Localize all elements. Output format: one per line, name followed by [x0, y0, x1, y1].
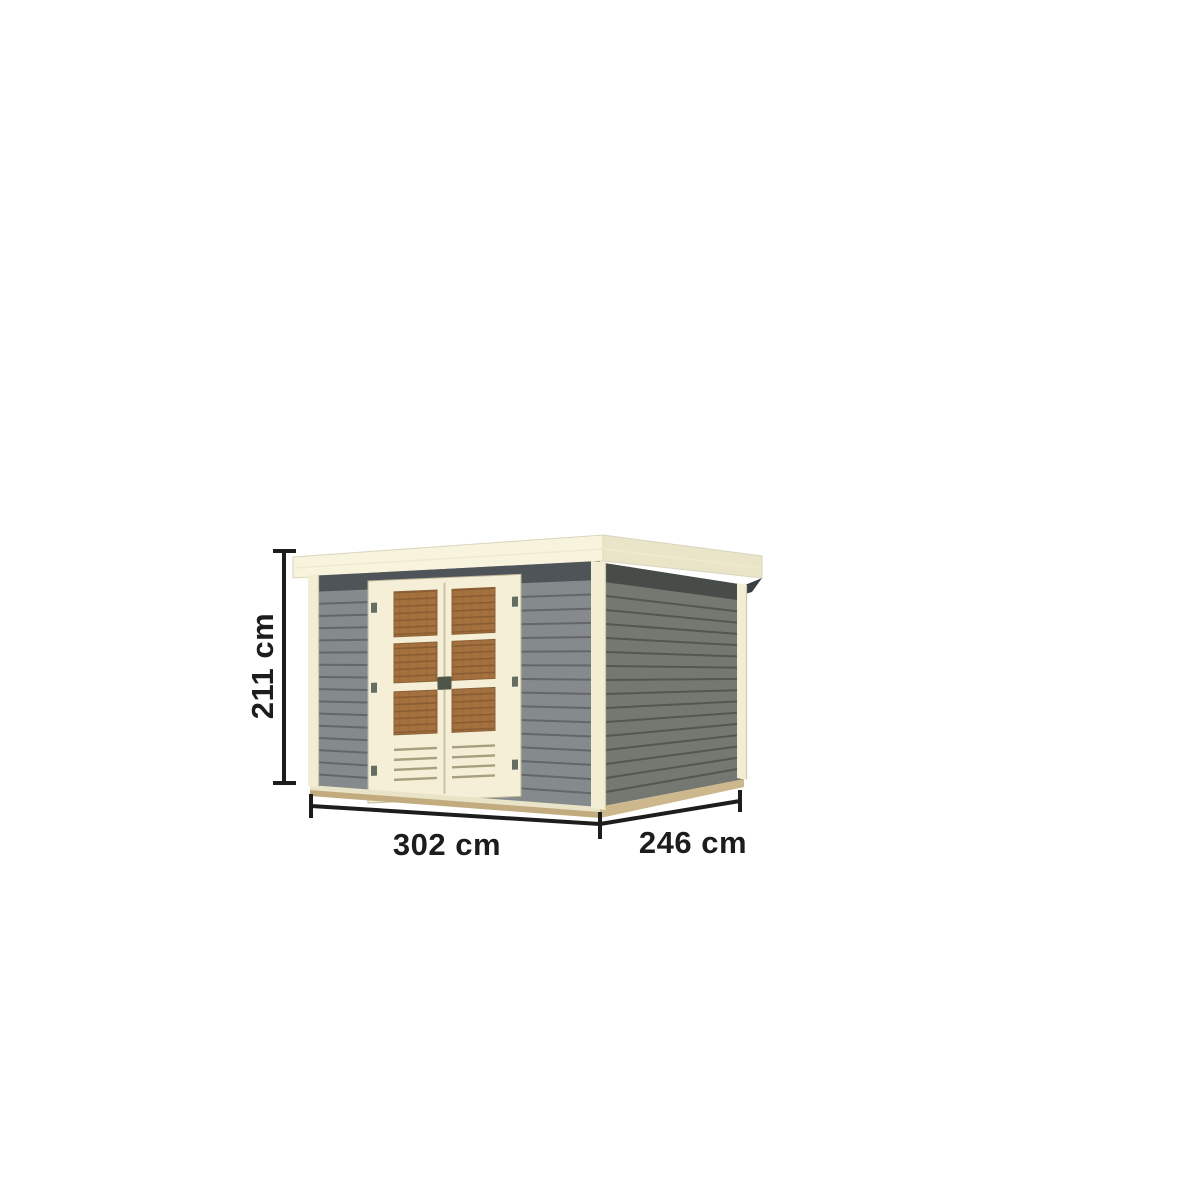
shed	[293, 535, 762, 818]
product-dimension-diagram: 211 cm 302 cm 246 cm	[0, 0, 1200, 1200]
roof-underside-shadow	[745, 578, 762, 594]
back-right-corner-trim	[737, 583, 747, 780]
door-window-pane	[394, 590, 437, 637]
front-right-corner-trim	[591, 561, 606, 810]
door-window-pane	[452, 639, 495, 680]
side-wall-face	[604, 563, 745, 806]
double-door	[368, 574, 521, 803]
height-dimension-label: 211 cm	[245, 613, 281, 719]
front-left-corner-trim	[308, 574, 319, 788]
depth-dimension-label: 246 cm	[639, 825, 747, 861]
door-window-pane	[394, 690, 437, 735]
door-handle	[438, 676, 452, 690]
door-window-pane	[452, 587, 495, 634]
shed-illustration	[0, 0, 1200, 1200]
door-window-pane	[394, 642, 437, 683]
door-window-pane	[452, 687, 495, 732]
width-dimension-label: 302 cm	[393, 827, 501, 863]
